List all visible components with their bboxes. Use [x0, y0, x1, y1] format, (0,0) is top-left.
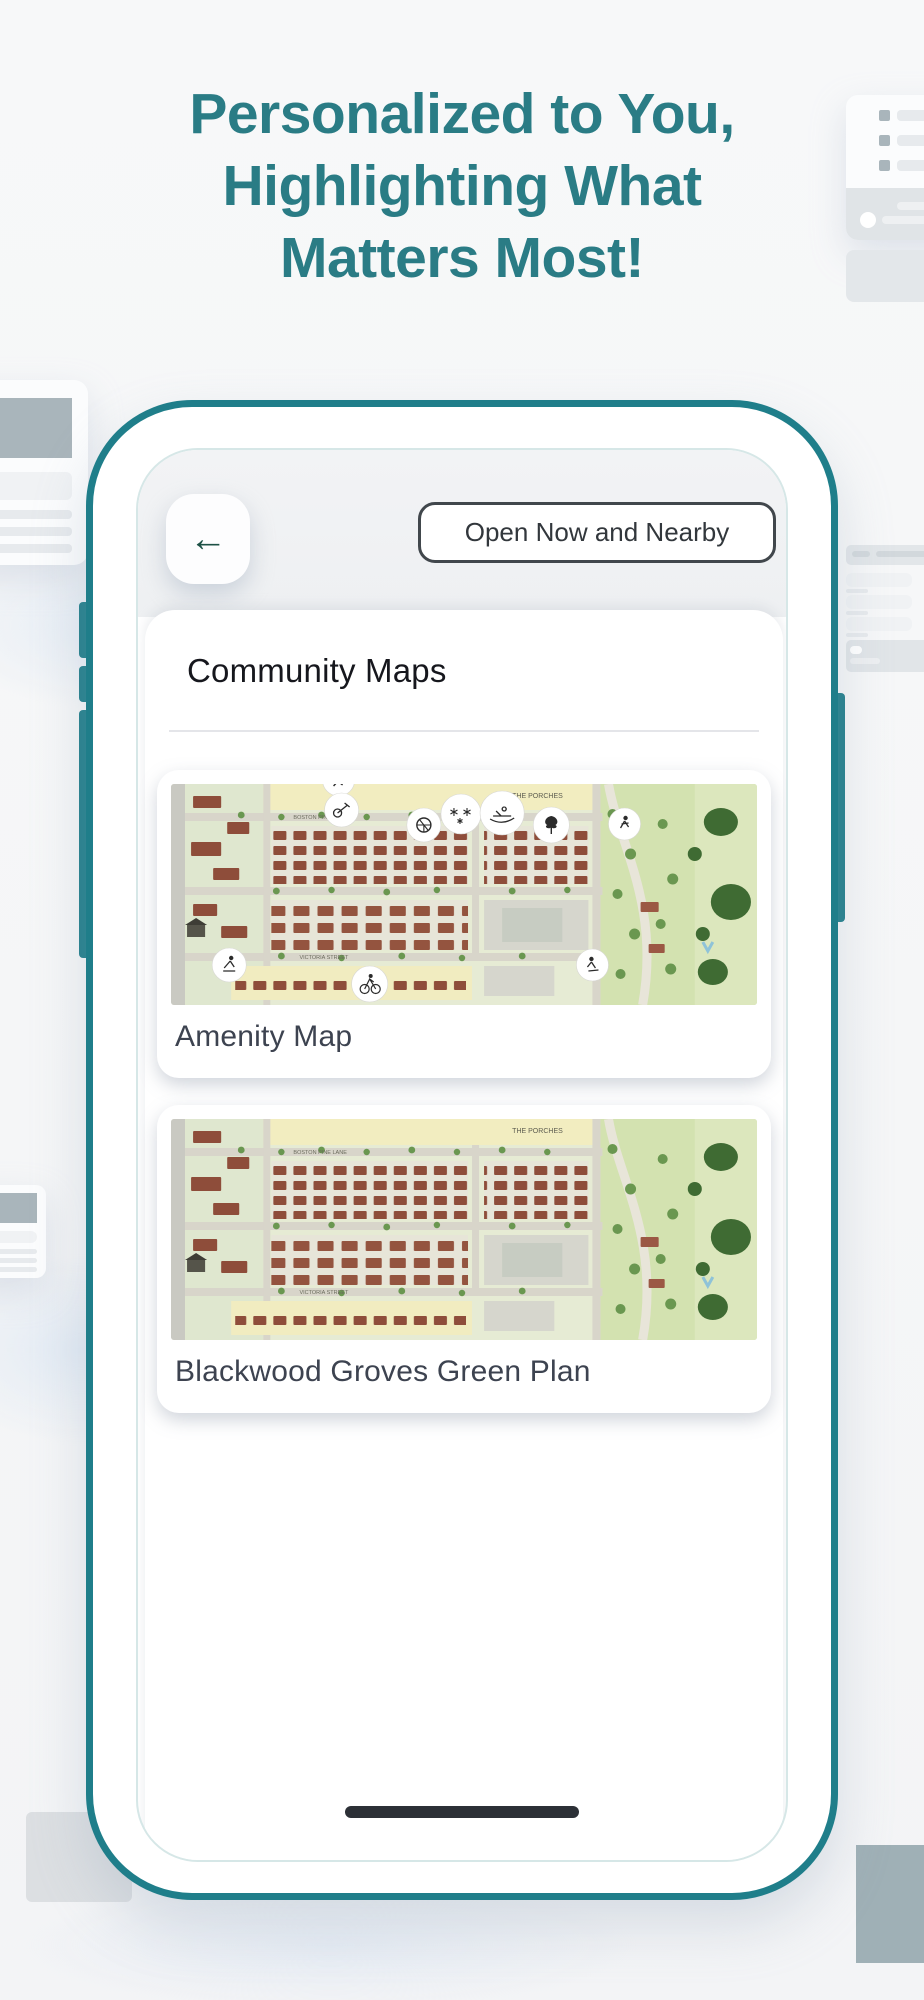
bg-block-bottom-right [856, 1845, 924, 1963]
green-plan-map-image [171, 1119, 757, 1340]
back-arrow-icon: ← [189, 518, 227, 561]
map-card-green-plan[interactable]: Blackwood Groves Green Plan [157, 1105, 771, 1413]
open-now-nearby-label: Open Now and Nearby [465, 517, 729, 548]
page-title-line: Matters Most! [0, 222, 924, 294]
bg-wireframe-card-left-top [0, 380, 88, 565]
community-maps-panel: Community Maps [145, 610, 783, 1862]
bg-wireframe-card-left-bottom [0, 1185, 46, 1278]
map-card-label: Blackwood Groves Green Plan [175, 1355, 757, 1389]
phone-screen: ← Open Now and Nearby Community Maps [136, 448, 788, 1862]
map-card-label: Amenity Map [175, 1020, 757, 1054]
open-now-nearby-button[interactable]: Open Now and Nearby [418, 502, 776, 563]
section-divider [169, 730, 759, 732]
map-card-amenity[interactable]: Amenity Map [157, 770, 771, 1078]
bg-wireframe-card-right-mid [846, 540, 924, 672]
home-indicator[interactable] [345, 1806, 579, 1818]
phone-mockup: ← Open Now and Nearby Community Maps [86, 400, 838, 1900]
section-title: Community Maps [187, 652, 447, 690]
page-title-line: Personalized to You, [0, 78, 924, 150]
page-title: Personalized to You, Highlighting What M… [0, 78, 924, 294]
back-button[interactable]: ← [166, 494, 250, 584]
page-title-line: Highlighting What [0, 150, 924, 222]
amenity-map-image [171, 784, 757, 1005]
app-store-screenshot: Personalized to You, Highlighting What M… [0, 0, 924, 2000]
